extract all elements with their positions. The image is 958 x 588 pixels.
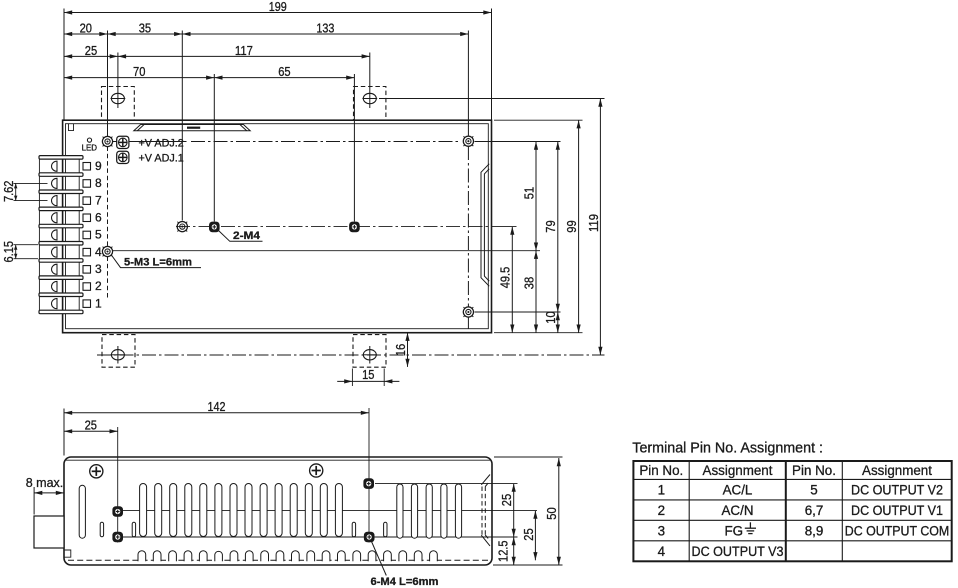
svg-text:DC OUTPUT V1: DC OUTPUT V1 (851, 503, 943, 518)
svg-text:133: 133 (316, 20, 334, 35)
svg-text:5-M3 L=6mm: 5-M3 L=6mm (124, 256, 192, 268)
svg-text:119: 119 (586, 214, 601, 232)
svg-text:AC/L: AC/L (723, 483, 753, 498)
svg-text:8,9: 8,9 (805, 523, 824, 538)
svg-text:DC OUTPUT V2: DC OUTPUT V2 (851, 483, 943, 498)
svg-text:Pin No.: Pin No. (639, 463, 683, 478)
svg-text:51: 51 (521, 187, 536, 199)
svg-text:6-M4 L=6mm: 6-M4 L=6mm (371, 576, 439, 588)
svg-text:+V ADJ.2: +V ADJ.2 (139, 138, 184, 150)
svg-text:4: 4 (658, 544, 666, 559)
svg-text:Assignment: Assignment (862, 463, 932, 478)
svg-text:117: 117 (235, 43, 253, 58)
svg-text:35: 35 (139, 20, 151, 35)
svg-text:25: 25 (85, 43, 97, 58)
svg-text:25: 25 (85, 418, 97, 433)
svg-text:8 max.: 8 max. (26, 475, 64, 490)
svg-text:16: 16 (393, 344, 408, 356)
svg-text:50: 50 (544, 507, 559, 519)
svg-text:2-M4: 2-M4 (233, 230, 261, 242)
svg-text:Assignment: Assignment (703, 463, 773, 478)
svg-text:49.5: 49.5 (498, 267, 513, 289)
svg-text:20: 20 (80, 20, 92, 35)
svg-text:9: 9 (95, 159, 102, 173)
svg-text:Terminal Pin No. Assignment :: Terminal Pin No. Assignment : (632, 440, 823, 456)
svg-text:4: 4 (95, 245, 102, 259)
svg-text:3: 3 (658, 523, 665, 538)
svg-text:25: 25 (521, 528, 536, 540)
svg-text:5: 5 (810, 483, 817, 498)
svg-text:AC/N: AC/N (722, 503, 754, 518)
svg-text:199: 199 (269, 0, 287, 14)
svg-text:12.5: 12.5 (495, 540, 510, 562)
svg-text:1: 1 (658, 483, 665, 498)
svg-text:+V ADJ.1: +V ADJ.1 (139, 152, 184, 164)
svg-text:8: 8 (95, 176, 102, 190)
svg-text:25: 25 (499, 494, 514, 506)
svg-text:6,7: 6,7 (805, 503, 824, 518)
svg-text:5: 5 (95, 228, 102, 242)
svg-text:1: 1 (95, 296, 102, 310)
svg-text:Pin No.: Pin No. (792, 463, 836, 478)
svg-text:65: 65 (278, 64, 290, 79)
svg-text:79: 79 (543, 220, 558, 232)
svg-text:142: 142 (208, 399, 226, 414)
svg-text:15: 15 (362, 367, 374, 382)
svg-text:10: 10 (543, 311, 558, 323)
svg-text:LED: LED (82, 144, 98, 153)
svg-text:6.15: 6.15 (1, 241, 16, 263)
svg-text:2: 2 (95, 279, 102, 293)
svg-text:2: 2 (658, 503, 665, 518)
svg-text:7: 7 (95, 193, 102, 207)
svg-text:99: 99 (564, 220, 579, 232)
svg-text:DC OUTPUT V3: DC OUTPUT V3 (692, 544, 784, 559)
svg-text:70: 70 (133, 64, 145, 79)
svg-text:6: 6 (95, 210, 102, 224)
svg-text:38: 38 (521, 277, 536, 289)
svg-text:3: 3 (95, 262, 102, 276)
svg-text:DC OUTPUT COM: DC OUTPUT COM (845, 523, 950, 538)
svg-text:FG: FG (724, 523, 743, 538)
